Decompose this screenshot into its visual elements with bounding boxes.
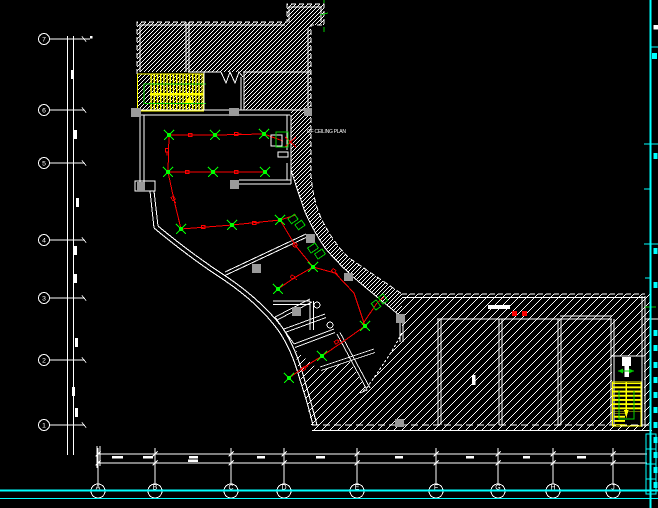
svg-text:5: 5 (42, 161, 46, 168)
svg-text:4: 4 (42, 238, 46, 245)
svg-text:2: 2 (42, 358, 46, 365)
svg-text:1: 1 (42, 423, 46, 430)
svg-text:6: 6 (42, 108, 46, 115)
svg-text:3: 3 (42, 296, 46, 303)
svg-text:7: 7 (42, 37, 46, 44)
svg-text:GF CEILING PLAN: GF CEILING PLAN (307, 129, 346, 135)
